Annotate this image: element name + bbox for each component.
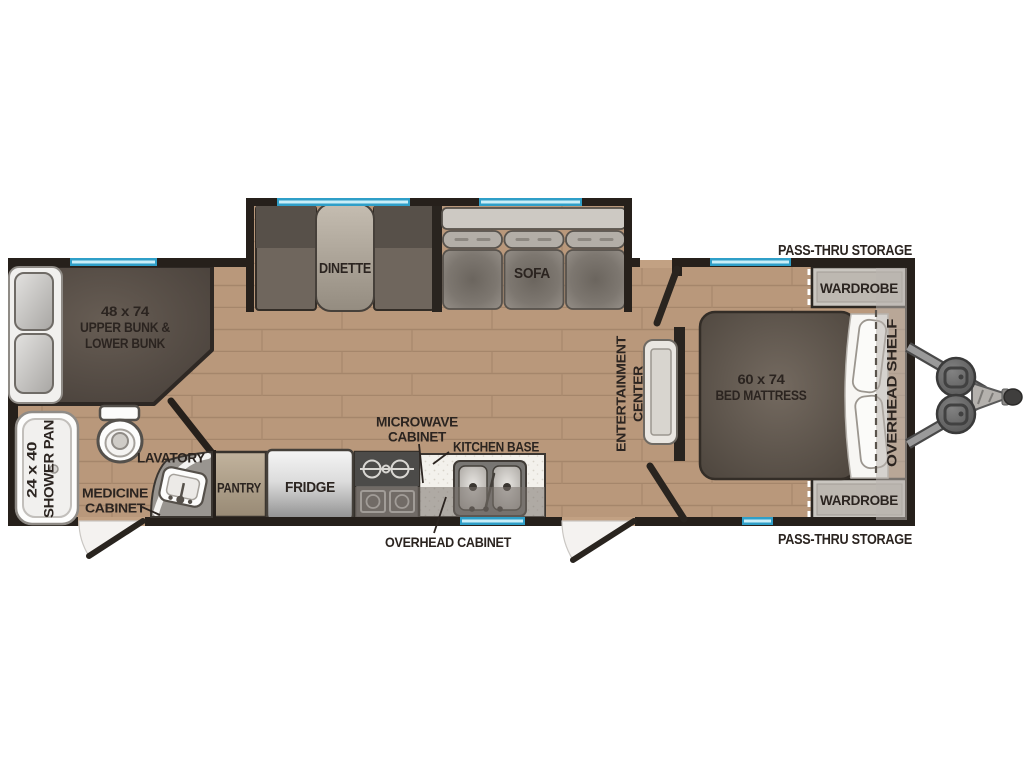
pantry-label: PANTRY — [217, 481, 261, 496]
propane-tank-1 — [937, 358, 975, 396]
wall-top-right — [672, 258, 915, 267]
slideout-wall-right — [624, 198, 632, 312]
dinette-label: DINETTE — [319, 261, 372, 277]
sofa-label: SOFA — [514, 266, 551, 282]
slideout-divider-wall — [432, 202, 442, 312]
slideout-wall-left — [246, 198, 254, 312]
bathroom-entry-door — [79, 521, 143, 556]
microwave-cabinet-label-line1: MICROWAVE — [376, 415, 458, 430]
overhead-cabinet-label: OVERHEAD CABINET — [385, 534, 512, 550]
dinette-bench-left-back — [256, 206, 316, 248]
hitch-ball — [1004, 389, 1022, 405]
seat-cushion-2 — [15, 334, 53, 393]
dinette-bench-right-back — [374, 206, 434, 248]
entertainment-center-label-line1: ENTERTAINMENT — [614, 336, 629, 452]
lavatory-label: LAVATORY — [137, 451, 205, 466]
toilet — [98, 406, 142, 462]
bedroom-bottom-window — [742, 517, 773, 525]
bunk-window — [70, 258, 157, 266]
bedroom-door-threshold — [640, 260, 674, 268]
entertainment-center-label-line2: CENTER — [631, 365, 646, 422]
kitchen-base-label: KITCHEN BASE — [453, 440, 539, 455]
main-entry-door — [562, 521, 634, 560]
trailer-hitch — [908, 347, 1022, 444]
wall-bottom-3 — [635, 517, 915, 526]
bunk-label-line3: LOWER BUNK — [85, 335, 165, 351]
medicine-cabinet-label-line2: CABINET — [85, 501, 145, 516]
propane-tank-2 — [937, 395, 975, 433]
wardrobe-top-label: WARDROBE — [820, 280, 898, 296]
floorplan-diagram: 48 x 74 UPPER BUNK & LOWER BUNK 24 x 40 … — [0, 0, 1024, 768]
bunk-size-label: 48 x 74 — [101, 303, 150, 319]
tv — [644, 340, 677, 444]
seat-cushion-1 — [15, 273, 53, 330]
wardrobe-bottom-label: WARDROBE — [820, 492, 898, 508]
floorplan-canvas: 48 x 74 UPPER BUNK & LOWER BUNK 24 x 40 … — [0, 0, 1024, 768]
front-cushion-seat — [9, 267, 62, 403]
dinette-window — [277, 198, 410, 206]
dinette-table — [316, 204, 374, 311]
sofa-window — [479, 198, 582, 206]
fridge-label: FRIDGE — [285, 480, 336, 496]
overhead-shelf-label: OVERHEAD SHELF — [885, 319, 900, 467]
overhead-cabinet-band — [355, 487, 545, 518]
sofa-back — [442, 208, 626, 229]
kitchen-group — [212, 450, 545, 520]
bedroom-top-window — [710, 258, 791, 266]
microwave-cabinet-label-line2: CABINET — [388, 430, 447, 445]
shower-label: SHOWER PAN — [42, 420, 57, 518]
medicine-cabinet-label-line1: MEDICINE — [82, 486, 149, 501]
wall-top-mid-stub — [624, 258, 640, 267]
toilet-tank — [100, 406, 139, 420]
bunk-label-line2: UPPER BUNK & — [80, 319, 170, 335]
sofa-cushion-3 — [566, 231, 625, 309]
dinette-group — [256, 202, 442, 312]
shower-size-label: 24 x 40 — [25, 442, 40, 498]
bed-label: BED MATTRESS — [716, 387, 807, 403]
pass-thru-storage-bottom-label: PASS-THRU STORAGE — [778, 532, 913, 548]
kitchen-window — [460, 517, 525, 525]
sofa-cushion-1 — [443, 231, 502, 309]
sofa-group — [442, 208, 626, 309]
pass-thru-storage-top-label: PASS-THRU STORAGE — [778, 243, 913, 259]
bed-size-label: 60 x 74 — [738, 371, 786, 387]
